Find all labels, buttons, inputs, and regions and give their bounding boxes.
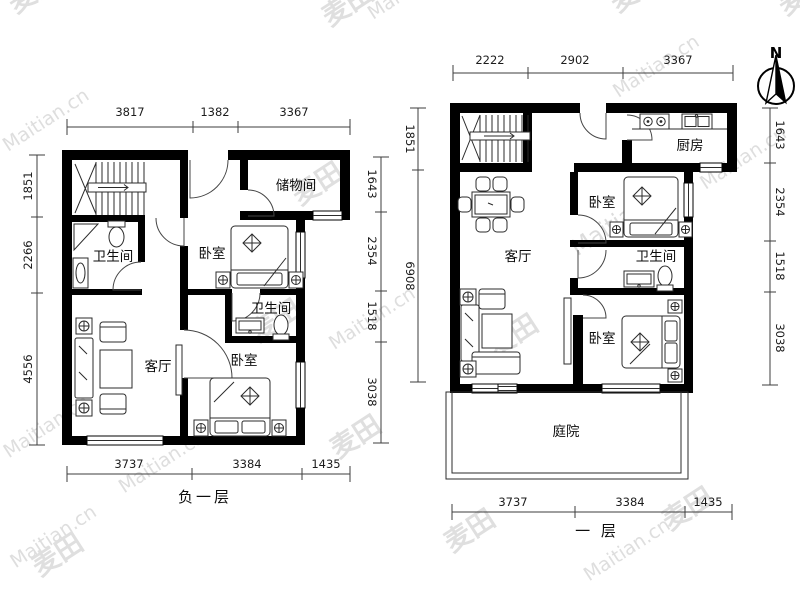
armchair-icon [100,322,126,342]
dining-chair-icon [493,218,507,232]
side-table-icon [460,361,476,377]
bed-lower-door-arc [583,295,606,318]
dining-chair-icon [511,197,524,212]
armchair-icon [479,289,505,309]
watermark-logo: 麦田 [605,0,667,19]
tv-icon [176,345,182,395]
dim-chain-bottom: 3737 3384 1435 [67,457,350,482]
window-living-bottom [87,436,163,445]
dining-chair-icon [458,197,471,212]
dim-label: 2222 [475,53,504,67]
window-bed-upper-right [684,183,693,217]
window-bed-upper-right [296,232,305,278]
room-label-bath-upper: 卫生间 [93,249,134,265]
toilet-icon [108,221,125,227]
nightstand-icon [668,300,682,313]
room-label-bed-upper: 卧室 [199,245,226,262]
room-label-bed-upper: 卧室 [589,194,616,211]
nightstand-icon [216,272,230,288]
room-label-living: 客厅 [145,358,172,375]
watermark-text: Maitian.cn [364,0,458,24]
dim-label: 2902 [560,53,589,67]
dim-label: 3367 [663,53,692,67]
window-bed-lower-right [296,362,305,408]
dim-label: 3367 [279,105,308,119]
shower-icon [74,224,98,250]
sofa-icon [472,352,520,374]
coffee-table-icon [482,314,512,348]
dim-label: 3384 [232,457,261,471]
sink-icon [682,114,712,129]
room-label-bath-lower: 卫生间 [251,301,292,317]
floor-plan-image: 麦田 麦田 麦田 麦田 Maitian.cn Maitian.cn Maitia… [0,0,800,599]
room-label-storage: 储物间 [276,178,317,194]
nightstand-icon [272,420,286,436]
dim-label: 2354 [365,236,379,265]
plan-title-first-floor: 一 层 [575,522,619,540]
bathroom-fixtures [624,266,673,291]
dim-chain-left: 1851 2266 4556 [21,155,45,445]
dim-label: 1851 [403,124,417,153]
room-label-courtyard: 庭院 [553,423,581,440]
window-kitchen [700,163,722,172]
room-label-bath: 卫生间 [636,249,677,265]
dim-label: 4556 [21,354,35,383]
tv-icon [564,298,571,364]
dining-set [458,177,524,232]
side-table-icon [76,400,92,416]
entry-door-arc [190,160,228,198]
window-storage [313,211,342,220]
nightstand-icon [610,222,623,237]
sofa-icon [75,338,93,398]
dim-label: 2266 [21,240,35,269]
dim-label: 3737 [114,457,143,471]
plan-title-basement: 负一层 [178,488,232,506]
staircase [75,162,146,215]
dim-label: 1643 [365,169,379,198]
side-table-icon [460,289,476,305]
nightstand-icon [668,369,682,382]
dim-label: 6908 [403,261,417,290]
coffee-table-icon [100,350,132,388]
dim-label: 3817 [115,105,144,119]
staircase [462,115,530,162]
watermark-logo: 麦田 [773,0,800,22]
dining-chair-icon [493,177,507,191]
kitchen-fixtures [632,114,727,129]
dim-label: 1643 [773,120,787,149]
dim-label: 1851 [21,171,35,200]
room-label-bed-lower: 卧室 [589,330,616,347]
dim-label: 1518 [365,301,379,330]
dim-label: 1435 [311,457,340,471]
room-label-living: 客厅 [505,248,532,265]
watermark-text: Maitian.cn [0,84,93,156]
watermark-logo: 麦田 [3,0,65,20]
dim-chain-top: 3817 1382 3367 [67,105,350,135]
bath-upper-door-arc [113,262,141,290]
dim-chain-left: 1851 6908 [403,108,426,382]
compass-icon: N [758,44,794,104]
bed-upper [216,226,303,288]
room-label-kitchen: 厨房 [677,138,704,154]
dim-label: 3737 [498,495,527,509]
nightstand-icon [194,420,208,436]
room-label-bed-lower: 卧室 [231,352,258,369]
bed-lower-door-arc [184,330,232,378]
nightstand-icon [679,222,692,237]
armchair-icon [100,394,126,414]
bed-lower [622,300,682,382]
dim-label: 1435 [693,495,722,509]
dim-label: 1518 [773,251,787,280]
side-table-icon [76,318,92,334]
dim-chain-top: 2222 2902 3367 [453,53,733,81]
floorplan-first-floor: 厨房 卧室 客厅 卫生间 卧室 庭院 2222 2902 3367 1851 6… [403,53,787,540]
dining-chair-icon [476,177,490,191]
nightstand-icon [289,272,303,288]
dim-label: 3038 [773,323,787,352]
bed-upper-door-arc [156,218,184,246]
dim-label: 3384 [615,495,644,509]
stove-icon [640,114,669,129]
dim-label: 2354 [773,187,787,216]
toilet-icon [274,315,288,335]
dim-label: 3038 [365,377,379,406]
toilet-icon [658,266,672,286]
entry-door-arc [580,113,606,139]
dining-chair-icon [476,218,490,232]
dim-label: 1382 [200,105,229,119]
floor-plan-canvas: 麦田 麦田 麦田 麦田 Maitian.cn Maitian.cn Maitia… [0,0,800,599]
bed-lower [194,378,286,436]
